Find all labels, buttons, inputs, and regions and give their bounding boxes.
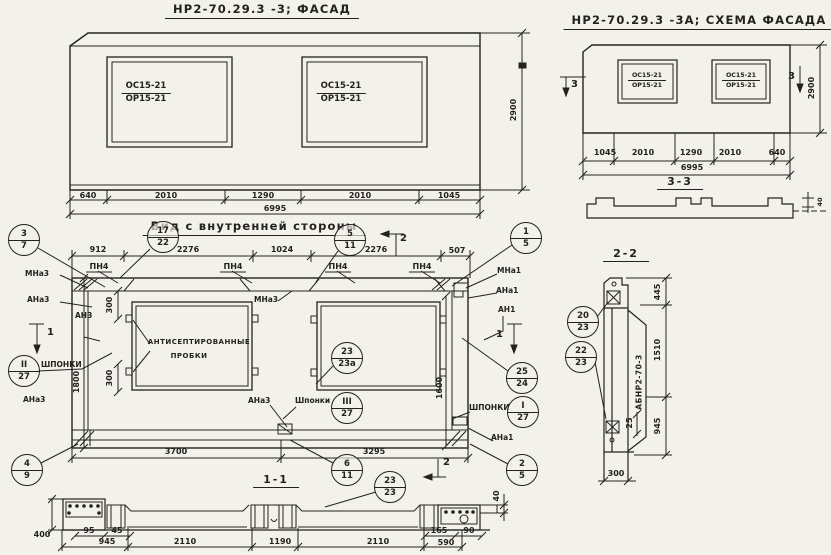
dim-label: 590	[438, 539, 455, 547]
scheme-window-right-mark: ОС15-21 ОР15-21	[722, 72, 760, 89]
dim-label: 95	[83, 527, 94, 535]
anchor-label-ana3: АНа3	[248, 397, 270, 405]
marker-circle-25-24: 2524	[506, 362, 538, 394]
dim-label: 90	[463, 527, 474, 535]
section-mark-1: 1	[496, 330, 503, 340]
section-mark-1: 1	[47, 328, 54, 338]
marker-circle-17-22: 1722	[147, 221, 179, 253]
dim-label: 25	[626, 417, 634, 428]
dim-height: 2900	[510, 99, 518, 121]
dim-label: 2010	[349, 192, 371, 200]
window-series: ОР15-21	[726, 81, 756, 89]
dim-height: 1800	[73, 371, 81, 393]
scheme-window-left-mark: ОС15-21 ОР15-21	[628, 72, 666, 89]
dim-label: 3700	[165, 448, 187, 456]
anchor-label-pn4: ПН4	[329, 263, 348, 271]
anchor-label-ana3: АНа3	[27, 296, 49, 304]
dim-label: 445	[654, 284, 662, 301]
inner-window-left	[132, 302, 252, 390]
dim-label: 45	[111, 527, 122, 535]
dim-label: 1045	[438, 192, 460, 200]
anchor-label-mna1: МНа1	[497, 267, 521, 275]
dim-label: 300	[608, 470, 625, 478]
marker-circle-4-9: 49	[11, 454, 43, 486]
dim-label: 640	[80, 192, 97, 200]
shponki-label: Шпонки	[295, 397, 330, 405]
section-3-3-title: 3-3	[657, 176, 703, 190]
dim-label: 2110	[367, 538, 389, 546]
dim-label: 945	[99, 538, 116, 546]
marker-circle-23-23a: 2323а	[331, 342, 363, 374]
section-1-1-title: 1-1	[253, 474, 299, 488]
window-series: ОР15-21	[632, 81, 662, 89]
dim-label: 2010	[155, 192, 177, 200]
marker-circle-23-23: 2323	[374, 471, 406, 503]
shponki-label: ШПОНКИ	[469, 404, 510, 412]
section-mark-2: 2	[443, 458, 450, 468]
anchor-label-an3: АН3	[75, 312, 92, 320]
dim-label: 165	[431, 527, 448, 535]
dim-label: 507	[449, 247, 466, 255]
dim-label: 640	[769, 149, 786, 157]
dim-label: 945	[654, 418, 662, 435]
facade-window-left-mark: ОС15-21 ОР15-21	[122, 82, 171, 105]
marker-circle-II-27: II27	[8, 355, 40, 387]
panel-stamp: АБНР2-70-3	[635, 354, 643, 409]
dim-label: 2010	[719, 149, 741, 157]
plugs-note-line2: ПРОБКИ	[171, 353, 208, 360]
dim-label: 2110	[174, 538, 196, 546]
dim-label: 1024	[271, 246, 293, 254]
dim-label: 40	[493, 490, 501, 501]
window-series: ОС15-21	[722, 72, 760, 81]
anchor-label-pn4: ПН4	[224, 263, 243, 271]
section-mark-3-right: 3	[788, 72, 795, 82]
marker-circle-2-5: 25	[506, 454, 538, 486]
dim-label: 2276	[177, 246, 199, 254]
dim-label: 3295	[363, 448, 385, 456]
plugs-note-line1: АНТИСЕПТИРОВАННЫЕ	[148, 339, 250, 346]
anchor-label-ana1: АНа1	[496, 287, 518, 295]
marker-circle-3-7: 37	[8, 224, 40, 256]
dim-label: 1290	[680, 149, 702, 157]
anchor-label-ana1: АНа1	[491, 434, 513, 442]
dim-label: 300	[106, 370, 114, 387]
drawing-sheet: НР2-70.29.3 -3; ФАСАД ОС15-21 ОР15-21 ОС…	[0, 0, 831, 555]
scheme-section-marks	[560, 66, 803, 96]
window-series: ОС15-21	[122, 82, 171, 94]
window-series: ОС15-21	[317, 82, 366, 94]
facade-title: НР2-70.29.3 -3; ФАСАД	[165, 4, 359, 19]
window-series: ОС15-21	[628, 72, 666, 81]
shponki-label: ШПОНКИ	[41, 361, 82, 369]
anchor-label-mna3: МНа3	[254, 296, 278, 304]
marker-circle-22-23: 2223	[565, 341, 597, 373]
dim-label: 400	[34, 531, 51, 539]
scheme-title: НР2-70.29.3 -3А; СХЕМА ФАСАДА	[564, 15, 831, 30]
marker-circle-I-27: I27	[507, 396, 539, 428]
anchor-label-pn4: ПН4	[90, 263, 109, 271]
anchor-label-ana3: АНа3	[23, 396, 45, 404]
marker-circle-6-11: 611	[331, 454, 363, 486]
marker-circle-20-23: 2023	[567, 306, 599, 338]
dim-label: 912	[90, 246, 107, 254]
anchor-label-pn4: ПН4	[413, 263, 432, 271]
dim-label: 2276	[365, 246, 387, 254]
window-series: ОР15-21	[321, 94, 362, 105]
section-2-2-title: 2-2	[603, 248, 649, 262]
facade-panel	[70, 33, 480, 190]
anchor-label-an1: АН1	[498, 306, 515, 314]
dim-label: 1510	[654, 339, 662, 361]
anchor-label-mna3: МНа3	[25, 270, 49, 278]
section-mark-3-left: 3	[571, 80, 578, 90]
dim-label: 2010	[632, 149, 654, 157]
dim-height: 1600	[436, 377, 444, 399]
facade-window-right-mark: ОС15-21 ОР15-21	[317, 82, 366, 105]
dim-label: 40	[817, 197, 824, 206]
dim-label: 300	[106, 297, 114, 314]
dim-height: 2900	[808, 77, 816, 99]
dim-label: 1290	[252, 192, 274, 200]
dim-total: 6995	[264, 205, 286, 213]
level-mark	[519, 63, 526, 68]
marker-circle-1-5: 15	[510, 222, 542, 254]
section-3-3-profile	[587, 192, 826, 218]
dim-label: 1045	[594, 149, 616, 157]
section-mark-2: 2	[400, 234, 407, 244]
window-series: ОР15-21	[126, 94, 167, 105]
marker-circle-III-27: III27	[331, 392, 363, 424]
dim-total: 6995	[681, 164, 703, 172]
dim-label: 1190	[269, 538, 291, 546]
marker-circle-5-11: 511	[334, 224, 366, 256]
